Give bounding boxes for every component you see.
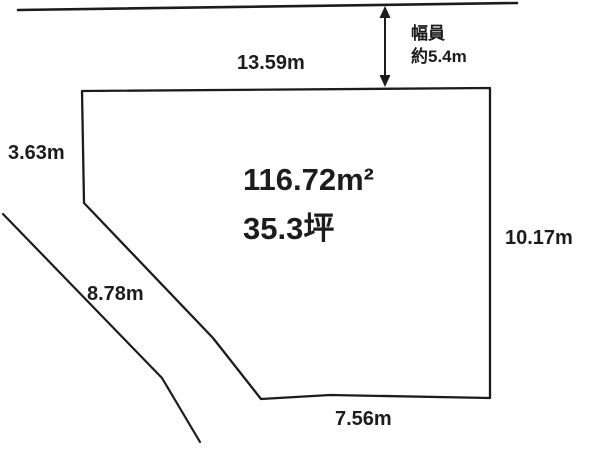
road-width-label-line2: 約5.4m [411,45,467,68]
dimension-bottom-edge: 7.56m [335,408,392,430]
dimension-left-lower-edge: 8.78m [87,283,144,305]
road-width-label: 幅員 約5.4m [411,22,467,68]
plot-area-tsubo: 35.3坪 [243,204,374,253]
road-far-edge-line [18,3,517,10]
land-plot-diagram: 幅員 約5.4m 13.59m 3.63m 8.78m 10.17m 7.56m… [0,0,611,453]
road-width-arrow-head-down [380,75,391,87]
plot-area-label: 116.72m² 35.3坪 [243,155,374,253]
dimension-right-edge: 10.17m [505,227,573,249]
plot-area-square-meters: 116.72m² [243,155,374,204]
road-width-arrow-head-up [380,6,391,18]
dimension-left-upper-edge: 3.63m [8,142,65,164]
road-side-boundary-line [3,214,200,442]
road-width-label-line1: 幅員 [411,22,467,45]
dimension-top-edge: 13.59m [237,52,305,74]
road-width-arrow [380,6,391,87]
